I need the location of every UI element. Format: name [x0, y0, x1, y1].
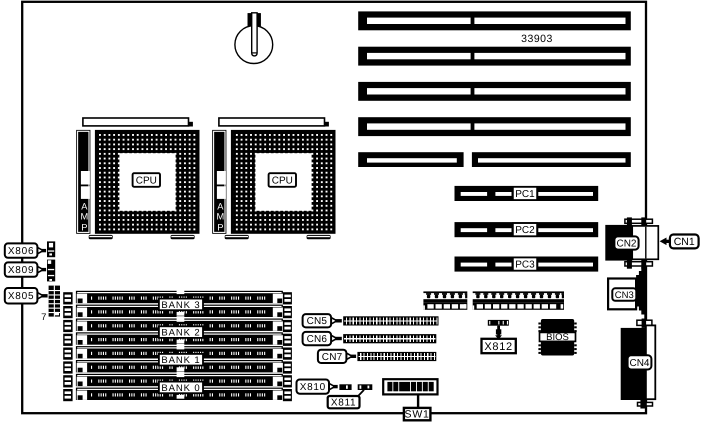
svg-text:CN6: CN6	[307, 334, 328, 345]
svg-text:X806: X806	[8, 246, 35, 257]
svg-text:BANK 2: BANK 2	[161, 328, 200, 339]
svg-text:BANK 0: BANK 0	[161, 383, 200, 394]
svg-text:CN2: CN2	[616, 239, 636, 250]
svg-text:PC3: PC3	[515, 260, 535, 271]
svg-text:A: A	[217, 202, 224, 212]
svg-text:BANK 1: BANK 1	[161, 355, 200, 366]
svg-text:BIOS: BIOS	[546, 332, 569, 343]
svg-text:X809: X809	[8, 265, 35, 276]
svg-text:X805: X805	[8, 291, 35, 302]
svg-text:CN7: CN7	[322, 352, 343, 363]
svg-text:CN3: CN3	[615, 290, 634, 301]
svg-text:SW1: SW1	[405, 408, 430, 420]
svg-text:CPU: CPU	[272, 176, 293, 187]
svg-text:PC2: PC2	[515, 225, 535, 236]
svg-text:X812: X812	[484, 341, 513, 353]
svg-text:CN4: CN4	[629, 358, 649, 369]
svg-text:CPU: CPU	[136, 176, 157, 187]
svg-text:P: P	[217, 223, 223, 233]
svg-text:33903: 33903	[521, 33, 553, 45]
svg-text:A: A	[81, 202, 88, 212]
svg-text:M: M	[81, 212, 89, 222]
svg-text:7: 7	[41, 312, 46, 323]
svg-text:P: P	[81, 223, 87, 233]
svg-text:X810: X810	[300, 382, 326, 393]
svg-text:CN1: CN1	[674, 236, 695, 248]
svg-text:X811: X811	[331, 398, 356, 409]
svg-text:BANK 3: BANK 3	[161, 300, 200, 311]
svg-text:PC1: PC1	[515, 189, 535, 200]
svg-text:M: M	[217, 212, 225, 222]
svg-text:CN5: CN5	[307, 316, 328, 327]
